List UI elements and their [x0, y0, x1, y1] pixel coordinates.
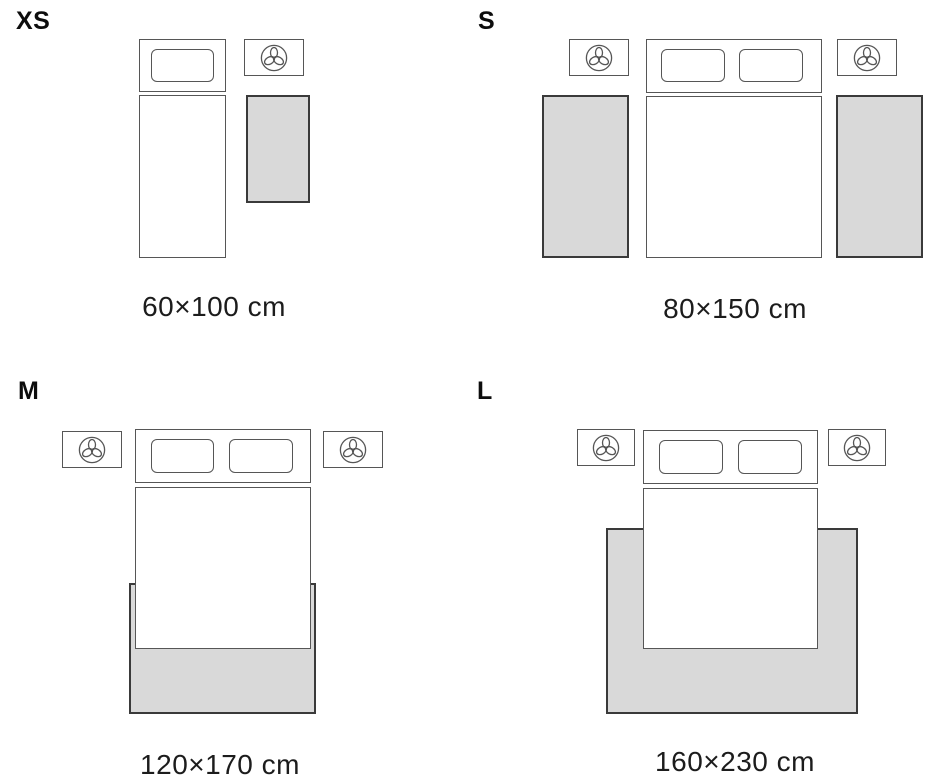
plant-icon	[260, 44, 288, 72]
dimension-label-xs: 60×100 cm	[94, 293, 334, 321]
dimension-label-l: 160×230 cm	[615, 748, 855, 776]
pillow	[151, 49, 214, 82]
pillow	[229, 439, 293, 473]
bed-mattress	[646, 96, 822, 258]
nightstand	[244, 39, 304, 76]
nightstand	[569, 39, 629, 76]
plant-icon	[592, 434, 620, 462]
pillow	[659, 440, 723, 474]
nightstand	[828, 429, 886, 466]
plant-icon	[78, 436, 106, 464]
plant-icon	[843, 434, 871, 462]
pillow	[738, 440, 802, 474]
rug-s-left	[542, 95, 629, 258]
plant-icon	[585, 44, 613, 72]
rug-xs	[246, 95, 310, 203]
nightstand	[577, 429, 635, 466]
pillow	[151, 439, 214, 473]
nightstand	[62, 431, 122, 468]
rug-size-guide: XS 60×100 cm S	[0, 0, 940, 780]
pillow	[661, 49, 725, 82]
nightstand	[323, 431, 383, 468]
rug-s-right	[836, 95, 923, 258]
dimension-label-m: 120×170 cm	[100, 751, 340, 779]
size-label-l: L	[477, 379, 493, 404]
bed-mattress	[139, 95, 226, 258]
dimension-label-s: 80×150 cm	[615, 295, 855, 323]
pillow	[739, 49, 803, 82]
bed-mattress	[643, 488, 818, 649]
bed-mattress	[135, 487, 311, 649]
plant-icon	[339, 436, 367, 464]
nightstand	[837, 39, 897, 76]
plant-icon	[853, 44, 881, 72]
